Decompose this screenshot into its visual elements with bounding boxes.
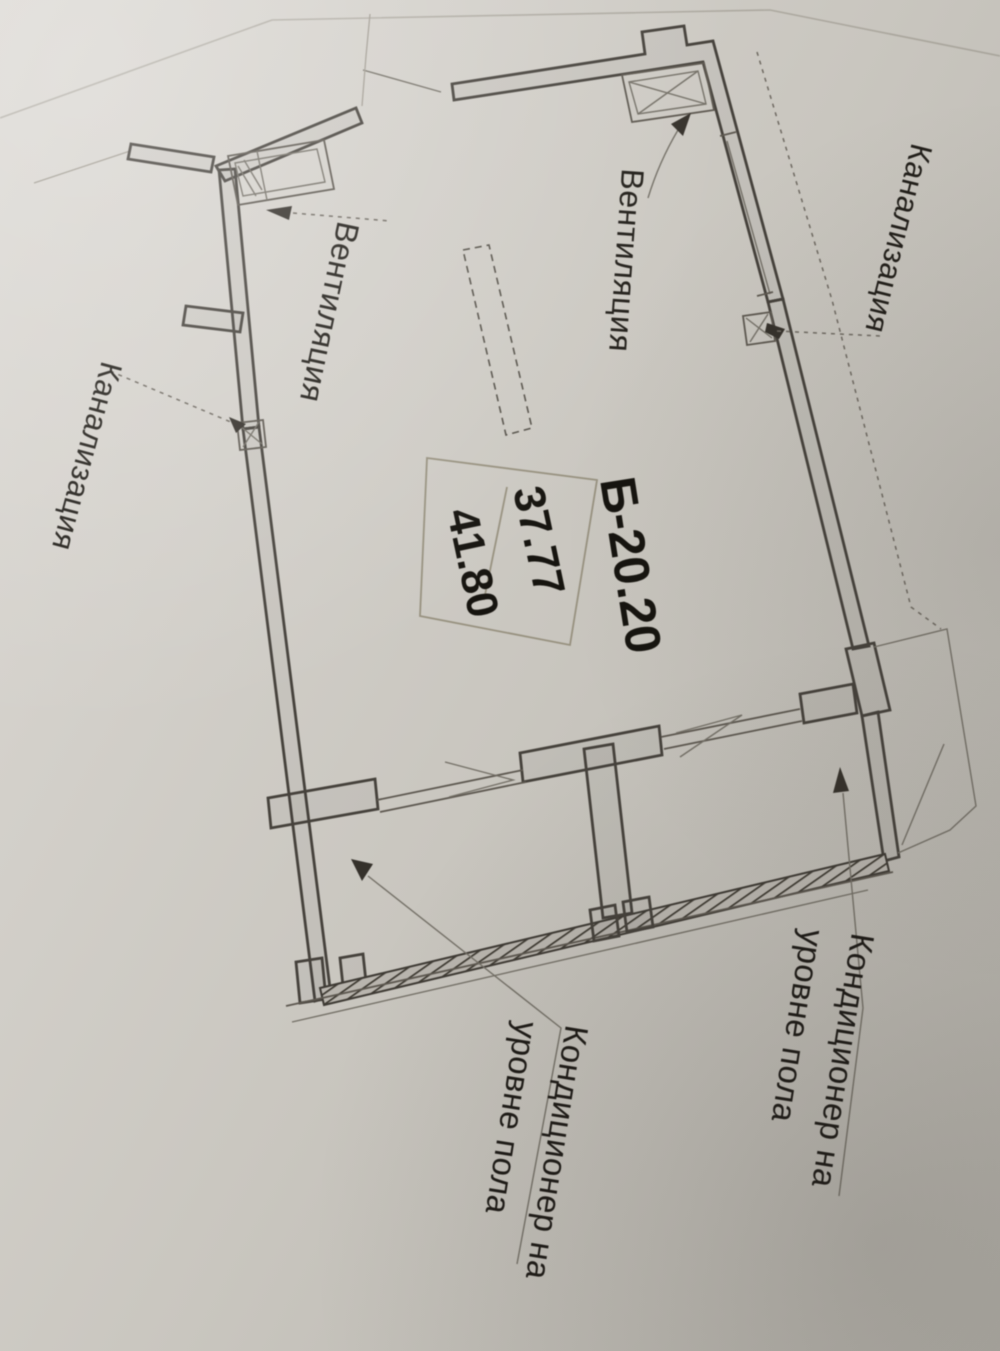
interior-partitions	[268, 684, 857, 941]
floor-plan-photo: Б-20.20 37.77 41.80 Вентиляция Вентиляци…	[0, 0, 1000, 1351]
floor-plan-drawing: Б-20.20 37.77 41.80 Вентиляция Вентиляци…	[0, 0, 1000, 1351]
ventilation-label-right: Вентиляция	[602, 168, 651, 354]
ventilation-left-arrow-icon	[266, 206, 292, 220]
ventilation-label-left: Вентиляция	[293, 219, 366, 406]
sewerage-label-left: Канализация	[45, 358, 129, 554]
living-area-value: 37.77	[503, 482, 574, 600]
leader-lines	[110, 130, 880, 1264]
area-stamp: Б-20.20 37.77 41.80	[420, 458, 672, 657]
ac-right-arrow-icon	[833, 767, 849, 793]
unit-number: Б-20.20	[589, 473, 672, 657]
sewerage-label-right: Канализация	[858, 140, 939, 337]
duct-rectangle	[463, 245, 532, 435]
door-leaves	[362, 14, 742, 797]
total-area-value: 41.80	[437, 504, 508, 622]
windows	[377, 132, 802, 812]
